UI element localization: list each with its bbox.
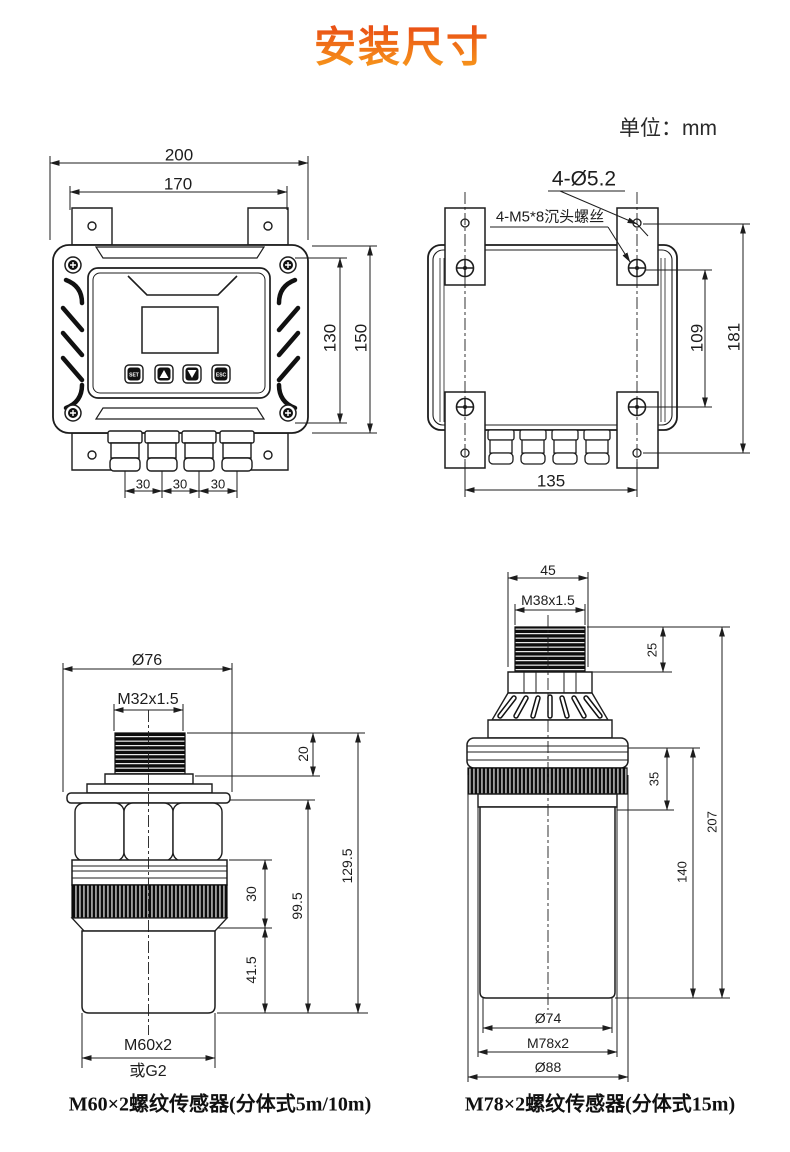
front-screw-height-dim: 130: [322, 324, 339, 352]
m60-ring-length-dim: 30: [244, 886, 258, 902]
m60-top-thread: [115, 733, 185, 774]
front-overall-height-dim: 150: [353, 324, 370, 352]
m78-cap-width-dim: 45: [540, 563, 556, 577]
esc-button-label: ESC: [216, 373, 227, 379]
m60-sensor-body: [67, 710, 230, 1035]
gland-spacing-dim-1: 30: [136, 478, 150, 491]
m78-collar: [467, 738, 628, 768]
front-display: [142, 307, 218, 353]
front-cable-glands: [108, 431, 254, 471]
m78-thread-length-dim: 25: [646, 643, 659, 657]
m78-top-thread-dim: M38x1.5: [521, 593, 575, 607]
m78-knurled-ring: [468, 768, 627, 794]
m60-top-thread-dim: M32x1.5: [117, 692, 178, 708]
front-overall-width-dim: 200: [165, 147, 193, 164]
set-button-label: SET: [129, 373, 139, 379]
front-body: [53, 245, 308, 433]
sensor-m60-drawing: [30, 640, 380, 1090]
back-hole-callout: 4-Ø5.2: [552, 169, 616, 190]
m60-sensor-caption: M60×2螺纹传感器(分体式5m/10m): [69, 1088, 371, 1117]
m60-total-length-dim: 129.5: [340, 848, 354, 883]
front-mount-width-dim: 170: [164, 176, 192, 193]
m60-bottom-thread-dim: M60x2: [124, 1038, 172, 1054]
back-cable-glands: [488, 430, 610, 464]
gland-spacing-dim-3: 30: [211, 478, 225, 491]
back-screw-spacing-v-dim: 109: [689, 324, 706, 352]
back-hole-spacing-h-dim: 135: [537, 473, 565, 490]
m78-total-length-dim: 207: [706, 811, 719, 833]
m78-top-thread: [515, 627, 585, 672]
m78-sensor-caption: M78×2螺纹传感器(分体式15m): [465, 1088, 735, 1117]
m60-thread-length-dim: 20: [296, 746, 310, 762]
m60-flange-diameter-dim: Ø76: [132, 653, 162, 669]
m78-transducer-tip: [480, 807, 615, 998]
m78-flange-diameter-dim: Ø88: [535, 1060, 561, 1074]
m78-body-length-dim: 140: [676, 861, 689, 883]
m78-sensor-body: [467, 615, 628, 1010]
back-hole-spacing-v-dim: 181: [726, 323, 743, 351]
m60-lower-length-dim: 99.5: [290, 892, 304, 919]
installation-dimensions-page: 安装尺寸 单位：mm: [0, 0, 790, 1152]
m60-alt-thread-dim: 或G2: [129, 1064, 166, 1080]
m78-tip-diameter-dim: Ø74: [535, 1011, 561, 1025]
m60-tip-length-dim: 41.5: [244, 956, 258, 983]
m60-knurled-ring: [72, 885, 227, 918]
m78-collar-length-dim: 35: [648, 772, 661, 786]
gland-spacing-dim-2: 30: [173, 478, 187, 491]
back-screw-callout: 4-M5*8沉头螺丝: [496, 210, 604, 225]
m78-bottom-thread-dim: M78x2: [527, 1036, 569, 1050]
unit-label: 单位：mm: [619, 112, 717, 142]
page-title: 安装尺寸: [314, 14, 490, 75]
